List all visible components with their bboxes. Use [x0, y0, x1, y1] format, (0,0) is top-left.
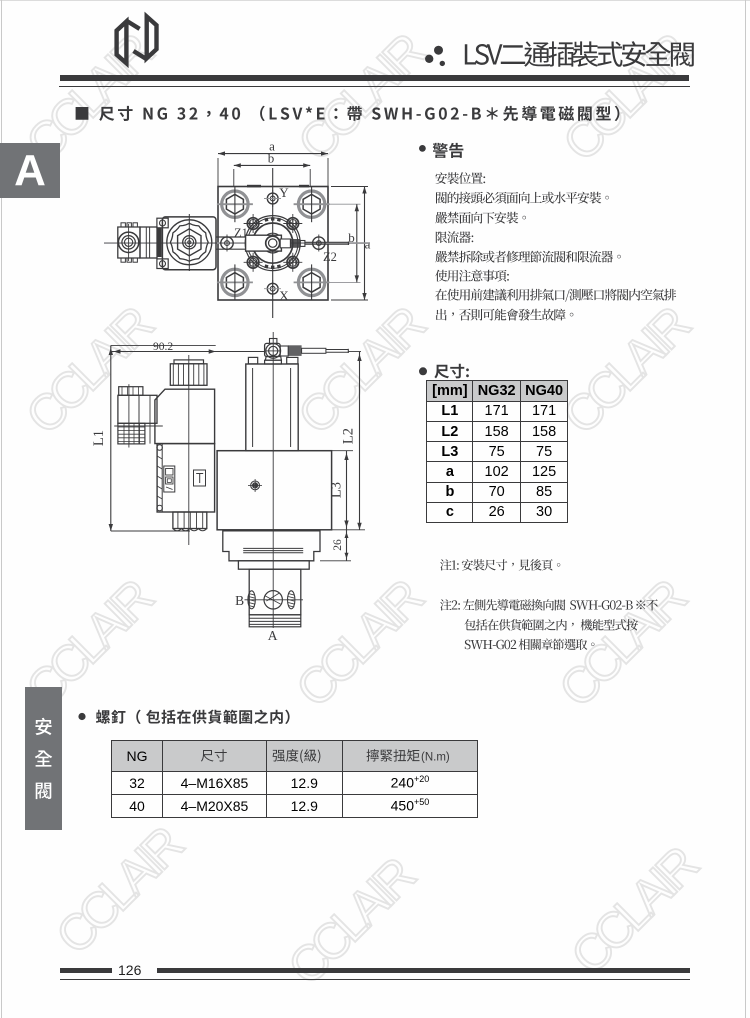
svg-text:(N.m): (N.m) [421, 752, 450, 764]
svg-text:L2: L2 [341, 428, 357, 444]
svg-text:A: A [268, 628, 278, 643]
svg-text:b: b [268, 151, 275, 166]
svg-text:B: B [235, 593, 244, 608]
svg-text:26: 26 [332, 539, 344, 551]
svg-text:L1: L1 [91, 430, 107, 446]
svg-text:Y: Y [279, 185, 289, 200]
svg-text:Z2: Z2 [323, 250, 337, 264]
svg-text:90.2: 90.2 [153, 341, 173, 353]
svg-text:a: a [365, 237, 371, 252]
svg-text:X: X [279, 288, 289, 303]
